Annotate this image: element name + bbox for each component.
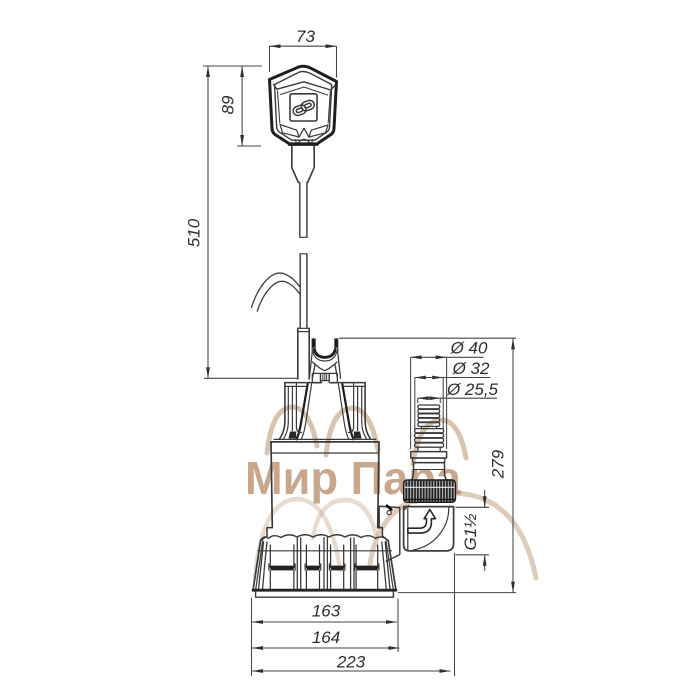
svg-text:Ø 40: Ø 40 xyxy=(450,339,488,358)
svg-text:G1½: G1½ xyxy=(461,514,480,551)
svg-text:510: 510 xyxy=(185,218,204,247)
svg-text:Ø 32: Ø 32 xyxy=(452,359,490,378)
svg-text:164: 164 xyxy=(312,628,340,647)
svg-text:Ø 25,5: Ø 25,5 xyxy=(446,380,499,399)
svg-text:89: 89 xyxy=(219,95,238,114)
svg-text:163: 163 xyxy=(312,602,341,621)
svg-text:279: 279 xyxy=(489,449,508,479)
svg-text:73: 73 xyxy=(296,27,315,46)
svg-text:223: 223 xyxy=(336,653,366,672)
